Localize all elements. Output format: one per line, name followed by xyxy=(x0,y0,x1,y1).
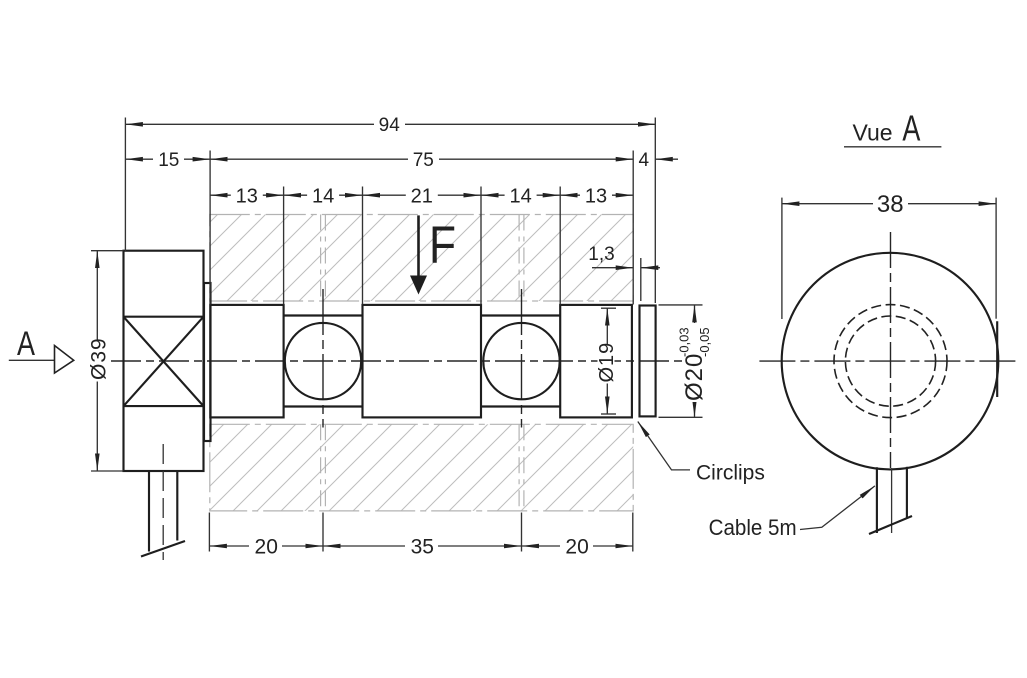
svg-text:21: 21 xyxy=(411,185,433,207)
svg-text:38: 38 xyxy=(877,191,904,218)
svg-text:1,3: 1,3 xyxy=(588,244,614,265)
svg-text:94: 94 xyxy=(379,115,401,136)
svg-text:Vue: Vue xyxy=(853,119,893,145)
svg-text:Ø20: Ø20 xyxy=(681,353,708,401)
svg-text:Cable 5m: Cable 5m xyxy=(709,515,797,540)
svg-text:A: A xyxy=(17,325,35,363)
svg-text:13: 13 xyxy=(585,185,607,207)
svg-text:20: 20 xyxy=(255,535,278,558)
svg-text:Circlips: Circlips xyxy=(696,461,765,484)
svg-text:Ø39: Ø39 xyxy=(87,337,110,380)
svg-text:-0,05: -0,05 xyxy=(697,327,712,357)
svg-text:4: 4 xyxy=(639,150,650,171)
svg-text:35: 35 xyxy=(411,535,434,558)
svg-text:Ø19: Ø19 xyxy=(596,342,618,383)
svg-text:14: 14 xyxy=(509,185,531,207)
svg-text:15: 15 xyxy=(158,150,179,171)
svg-text:F: F xyxy=(429,216,456,275)
svg-text:75: 75 xyxy=(413,150,434,171)
svg-text:14: 14 xyxy=(312,185,334,207)
svg-text:13: 13 xyxy=(236,185,258,207)
svg-text:20: 20 xyxy=(565,535,588,558)
svg-text:-0,03: -0,03 xyxy=(677,327,692,357)
svg-text:A: A xyxy=(902,107,920,148)
